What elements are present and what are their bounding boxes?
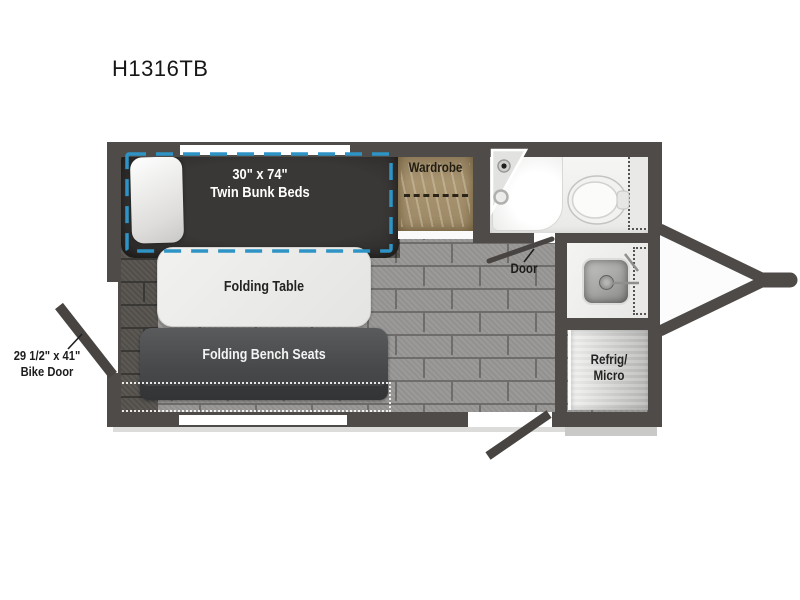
bottom-window xyxy=(179,415,347,425)
floorplan-canvas: H1316TB 30" x 74" Twin Bunk Beds Wardrob… xyxy=(0,0,800,600)
trailer-shadow xyxy=(113,427,565,432)
refrig-step-shadow xyxy=(565,427,657,436)
top-window xyxy=(180,145,350,155)
sink-drain xyxy=(599,275,614,290)
bathroom-door-opening xyxy=(534,233,555,243)
folding-table-label: Folding Table xyxy=(157,279,371,295)
bike-door-label: 29 1/2" x 41" Bike Door xyxy=(8,348,86,379)
wall-segment xyxy=(473,142,490,243)
bathroom-wall xyxy=(473,233,662,243)
bed-extension-outline xyxy=(119,382,391,412)
model-title: H1316TB xyxy=(112,56,208,82)
shower-pan xyxy=(492,150,563,231)
right-exterior-wall xyxy=(648,142,662,427)
entry-door-opening xyxy=(468,412,552,427)
wardrobe-base-strip xyxy=(398,231,473,239)
hitch-a-frame xyxy=(660,229,766,331)
bike-label-pointer xyxy=(68,334,82,349)
bunk-beds-label: 30" x 74" Twin Bunk Beds xyxy=(121,166,399,202)
galley-wall xyxy=(555,243,567,413)
wardrobe-label: Wardrobe xyxy=(398,160,473,175)
door-label: Door xyxy=(497,261,551,276)
refrig-micro-label: Refrig/ Micro xyxy=(568,352,650,384)
folding-bench-label: Folding Bench Seats xyxy=(140,347,388,363)
bike-door-opening xyxy=(107,282,118,373)
wardrobe-hanger-rod xyxy=(404,194,468,197)
bathroom-counter-outline xyxy=(628,154,650,230)
